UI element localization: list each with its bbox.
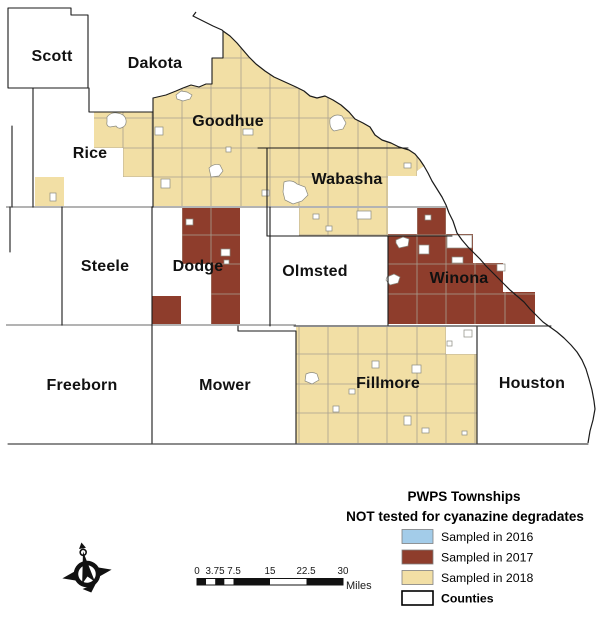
- scale-tick-0: 0: [194, 566, 200, 577]
- scale-tick-7-5: 7.5: [227, 566, 241, 577]
- county-label-winona: Winona: [430, 270, 489, 287]
- legend: PWPS Townships NOT tested for cyanazine …: [346, 489, 584, 606]
- scale-unit-label: Miles: [346, 580, 372, 592]
- legend-label-2017: Sampled in 2017: [441, 551, 533, 565]
- compass-rose-icon: [57, 538, 115, 597]
- scale-bar: 0 3.75 7.5 15 22.5 30 Miles: [194, 566, 372, 592]
- legend-item-2018: Sampled in 2018: [402, 571, 533, 586]
- legend-title-line2: NOT tested for cyanazine degradates: [346, 509, 584, 524]
- legend-swatch-2018: [402, 571, 433, 585]
- legend-item-2016: Sampled in 2016: [402, 530, 533, 545]
- scale-tick-3-75: 3.75: [205, 566, 225, 577]
- map-svg: Scott Dakota Rice Goodhue Wabasha Steele…: [0, 0, 610, 624]
- county-label-dodge: Dodge: [173, 258, 224, 275]
- county-label-steele: Steele: [81, 258, 129, 275]
- county-label-rice: Rice: [73, 145, 108, 162]
- legend-label-2016: Sampled in 2016: [441, 530, 533, 544]
- county-label-houston: Houston: [499, 375, 565, 392]
- scale-tick-15: 15: [265, 566, 276, 577]
- legend-label-counties: Counties: [441, 592, 494, 606]
- scale-tick-30: 30: [338, 566, 349, 577]
- county-label-freeborn: Freeborn: [47, 377, 118, 394]
- county-label-mower: Mower: [199, 377, 251, 394]
- legend-item-counties: Counties: [402, 591, 494, 606]
- legend-title-line1: PWPS Townships: [407, 489, 520, 504]
- county-label-olmsted: Olmsted: [282, 263, 347, 280]
- county-label-wabasha: Wabasha: [311, 171, 382, 188]
- legend-swatch-counties: [402, 591, 433, 605]
- legend-item-2017: Sampled in 2017: [402, 550, 533, 565]
- legend-swatch-2017: [402, 550, 433, 564]
- legend-label-2018: Sampled in 2018: [441, 571, 533, 585]
- legend-swatch-2016: [402, 530, 433, 544]
- county-label-dakota: Dakota: [128, 55, 183, 72]
- county-label-scott: Scott: [32, 48, 73, 65]
- county-label-fillmore: Fillmore: [356, 375, 420, 392]
- scale-tick-22-5: 22.5: [296, 566, 316, 577]
- county-label-goodhue: Goodhue: [192, 113, 264, 130]
- map-region: Scott Dakota Rice Goodhue Wabasha Steele…: [6, 8, 595, 444]
- map-figure: Scott Dakota Rice Goodhue Wabasha Steele…: [0, 0, 610, 624]
- scale-bar-segments: [197, 579, 343, 586]
